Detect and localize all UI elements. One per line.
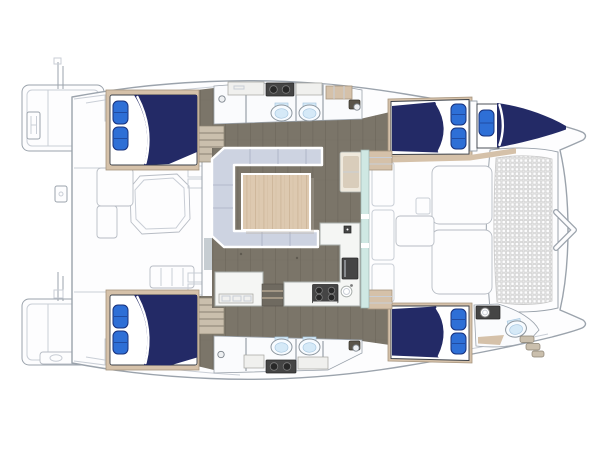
toilet-lid	[303, 343, 316, 353]
bow-step	[520, 336, 534, 343]
sliding-door-track	[204, 238, 212, 270]
vanity-cabinet	[244, 355, 264, 368]
deck-fitting	[218, 351, 224, 357]
counter-louver	[219, 294, 253, 303]
vanity-cabinet	[228, 82, 264, 95]
aft-cabin-bottom	[106, 290, 199, 370]
burner	[316, 287, 323, 294]
basin	[270, 86, 278, 94]
fridge	[342, 258, 358, 279]
wardrobe	[326, 86, 352, 99]
vanity-cabinet	[298, 357, 328, 369]
floor-dot	[240, 253, 242, 255]
burner	[328, 294, 335, 301]
forward-cabin-bottom	[388, 303, 472, 363]
stove-knobs	[313, 302, 338, 305]
bow-step	[532, 351, 544, 357]
burner	[328, 287, 335, 294]
mast-seat	[396, 216, 434, 246]
dresser	[368, 151, 392, 170]
blanket	[392, 102, 445, 153]
antenna-bottom	[58, 272, 63, 301]
catamaran-floorplan	[0, 0, 600, 450]
stove	[313, 285, 339, 304]
toilet-lid	[275, 109, 288, 119]
dining-table	[242, 174, 310, 230]
deck-fitting	[219, 96, 225, 102]
foredeck-lounge-bottom	[432, 230, 492, 294]
bow-step	[526, 344, 540, 351]
vanity-cabinet	[296, 83, 322, 95]
toilet-lid	[275, 343, 288, 353]
shelf-unit	[262, 284, 283, 306]
cockpit-seat	[97, 206, 117, 238]
basin	[282, 86, 290, 94]
fitting-dot	[347, 229, 349, 231]
floor-dot	[296, 257, 298, 259]
glass-mullion	[361, 214, 369, 219]
forward-cabin-top	[388, 97, 472, 157]
basin	[270, 363, 278, 371]
deck-fitting	[354, 104, 360, 110]
glass-mullion	[361, 243, 369, 248]
blanket	[392, 307, 445, 358]
davit-bracket	[55, 186, 67, 202]
trampoline	[486, 148, 558, 312]
burner	[316, 294, 323, 301]
deck-fitting	[353, 345, 359, 351]
aft-cabin-top	[106, 90, 199, 170]
berth-divider	[470, 101, 477, 151]
galley-sink	[341, 286, 352, 297]
cockpit-table	[130, 174, 190, 234]
salon	[212, 148, 369, 308]
faucet	[350, 284, 353, 287]
toilet-lid	[303, 109, 316, 119]
cockpit-bench	[97, 168, 133, 206]
floorplan-canvas	[0, 0, 600, 450]
basin	[283, 363, 291, 371]
forward-glass-wall	[361, 150, 369, 308]
trampoline-mesh	[494, 156, 552, 305]
basin	[480, 308, 489, 317]
dresser	[368, 290, 392, 309]
foredeck-lounge-top	[432, 166, 492, 224]
